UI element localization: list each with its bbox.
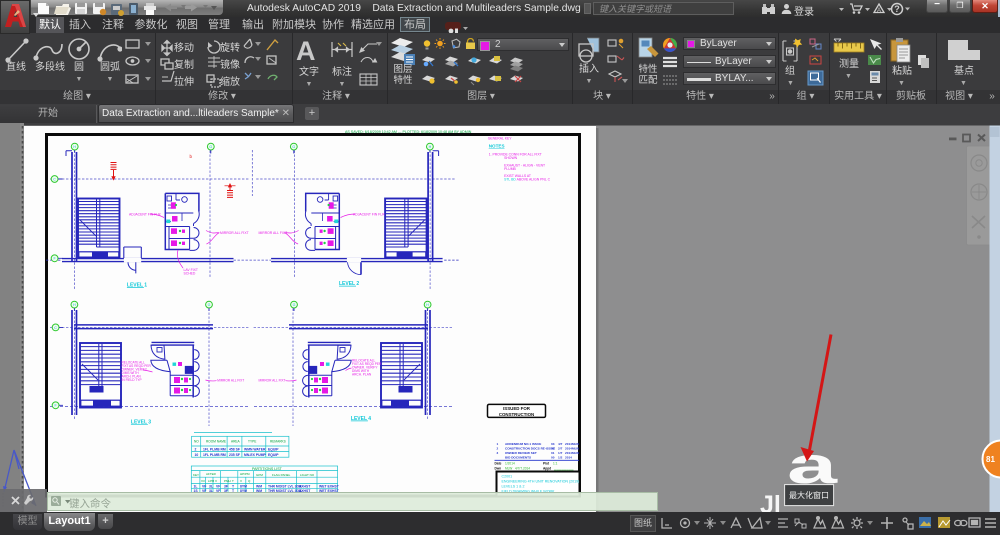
svg-text:MIRROR ALL FIXT: MIRROR ALL FIXT (217, 379, 244, 383)
svg-text:G: G (292, 145, 295, 149)
svg-text:MIRROR ALL FIXT: MIRROR ALL FIXT (220, 231, 249, 235)
svg-text:C2001: C2001 (502, 475, 513, 479)
svg-text:▼: ▼ (898, 80, 905, 87)
svg-text:CONSTRUCTION DOCS RE-ISSUE: CONSTRUCTION DOCS RE-ISSUE (505, 447, 555, 451)
svg-text:V: V (215, 479, 217, 483)
svg-text:VF: VF (216, 485, 220, 489)
svg-text:粘贴: 粘贴 (892, 64, 912, 77)
svg-text:FLAG PANEL: FLAG PANEL (272, 473, 291, 477)
svg-text:PARTITIONS LIST: PARTITIONS LIST (252, 467, 283, 471)
svg-text:CONSTRUCTION: CONSTRUCTION (499, 412, 534, 417)
svg-text:4/7: 4/7 (558, 442, 563, 446)
svg-text:MLW: MLW (572, 442, 579, 446)
svg-text:SCHED: SCHED (184, 272, 196, 276)
svg-text:MN-EX PUMP: MN-EX PUMP (244, 453, 266, 457)
svg-text:Jl: Jl (760, 491, 781, 512)
svg-text:EQUIP: EQUIP (268, 453, 279, 457)
svg-text:3L: 3L (209, 485, 213, 489)
svg-text:ARCH. PLAN: ARCH. PLAN (352, 373, 372, 377)
svg-text:8YM: 8YM (240, 485, 247, 489)
svg-text:LPM: LPM (208, 479, 215, 483)
svg-text:1L: 1L (194, 485, 198, 489)
svg-text:02: 02 (551, 447, 555, 451)
svg-text:NOTES: NOTES (489, 144, 505, 149)
svg-text:1FL PLMB RM: 1FL PLMB RM (203, 453, 226, 457)
svg-text:缩放: 缩放 (220, 75, 240, 88)
svg-text:2/7: 2/7 (558, 447, 563, 451)
svg-text:1/7: 1/7 (558, 451, 563, 455)
svg-text:旋转: 旋转 (220, 41, 240, 54)
svg-text:▁▁▁▁▁▁▁▁: ▁▁▁▁▁▁▁▁ (553, 467, 574, 471)
svg-text:G: G (208, 303, 211, 307)
svg-text:MIRROR ALL FIXT: MIRROR ALL FIXT (259, 379, 286, 383)
svg-text:V3: V3 (201, 479, 205, 483)
svg-text:镜像: 镜像 (220, 58, 240, 71)
svg-text:1: 1 (497, 442, 499, 446)
svg-text:81: 81 (986, 455, 995, 464)
svg-text:LIGHT NO: LIGHT NO (300, 473, 315, 477)
svg-text:235 SF: 235 SF (229, 453, 240, 457)
svg-text:THR MOIST LVL 3OA: THR MOIST LVL 3OA (268, 485, 302, 489)
svg-text:458 SF: 458 SF (229, 447, 240, 451)
svg-text:2014: 2014 (565, 456, 572, 460)
svg-text:最大化窗口: 最大化窗口 (789, 490, 829, 500)
svg-text:▼: ▼ (845, 73, 852, 80)
svg-text:T: T (232, 479, 234, 483)
svg-text:SHOWN: SHOWN (504, 156, 518, 160)
svg-text:PMH: PMH (224, 479, 231, 483)
svg-text:1FL PLMB RM: 1FL PLMB RM (203, 447, 226, 451)
svg-text:3F: 3F (224, 485, 228, 489)
svg-text:PLUMB: PLUMB (504, 167, 516, 171)
svg-text:3: 3 (497, 451, 499, 455)
svg-text:AFTER: AFTER (206, 472, 217, 476)
svg-text:MLW: MLW (572, 451, 579, 455)
svg-text:H: H (73, 145, 76, 149)
svg-text:V: V (240, 479, 242, 483)
svg-text:TYPE: TYPE (248, 440, 256, 444)
svg-text:ADJACENT FIN FLR: ADJACENT FIN FLR (353, 213, 385, 217)
svg-text:AREA: AREA (231, 440, 241, 444)
svg-text:C: C (53, 177, 56, 181)
svg-text:C: C (54, 326, 57, 330)
svg-text:ROOM NAME: ROOM NAME (206, 440, 226, 444)
svg-text:AS SAVED: 6/18/2009 10:42 AM —: AS SAVED: 6/18/2009 10:42 AM — PLOTTED: … (345, 130, 472, 134)
svg-text:?: ? (894, 4, 900, 14)
svg-text:1/2: 1/2 (558, 456, 563, 460)
svg-text:OWNER REVIEW SET: OWNER REVIEW SET (505, 451, 537, 455)
svg-text:2: 2 (195, 447, 197, 451)
svg-text:G: G (293, 303, 296, 307)
svg-text:1/2014: 1/2014 (505, 462, 515, 466)
svg-text:MIRROR ALL FIXT: MIRROR ALL FIXT (259, 231, 288, 235)
svg-text:EXHST: EXHST (299, 485, 311, 489)
svg-text:Plot: Plot (543, 462, 550, 466)
svg-text:HP/PM: HP/PM (240, 472, 250, 476)
svg-text:VF: VF (202, 485, 206, 489)
svg-text:拉伸: 拉伸 (174, 75, 194, 88)
svg-text:基点: 基点 (954, 64, 974, 77)
svg-text:H: H (73, 303, 76, 307)
svg-text:1:1: 1:1 (553, 462, 558, 466)
svg-text:GPM: GPM (256, 473, 263, 477)
svg-text:EQUIP: EQUIP (268, 447, 279, 451)
svg-text:WET EXHST: WET EXHST (319, 485, 340, 489)
svg-text:LEVELS 1 & 2: LEVELS 1 & 2 (502, 485, 525, 489)
svg-text:00: 00 (551, 456, 555, 460)
svg-text:Dwn: Dwn (495, 467, 502, 471)
svg-text:KEY: KEY (193, 473, 199, 477)
svg-text:BID DOCUMENTS: BID DOCUMENTS (505, 456, 531, 460)
svg-text:NO: NO (194, 440, 199, 444)
svg-text:STL BD ABOVE ALIGN PNL C: STL BD ABOVE ALIGN PNL C (504, 177, 550, 181)
svg-text:Date: Date (495, 462, 502, 466)
svg-text:01: 01 (551, 451, 555, 455)
svg-text:MLW: MLW (505, 467, 512, 471)
svg-text:G: G (209, 145, 212, 149)
svg-text:10: 10 (195, 453, 199, 457)
svg-text:MLW: MLW (572, 447, 579, 451)
svg-text:H: H (426, 303, 429, 307)
svg-text:IN FIELD TYP: IN FIELD TYP (122, 378, 142, 382)
svg-text:ADDENDUM NO.1 ISSUE: ADDENDUM NO.1 ISSUE (505, 442, 541, 446)
svg-text:组: 组 (785, 64, 795, 77)
svg-text:ENGINEERING 4TH UNIT RENOVATIO: ENGINEERING 4TH UNIT RENOVATION (2019) (502, 480, 580, 484)
svg-text:A: A (877, 8, 881, 14)
svg-text:WM: WM (256, 485, 262, 489)
svg-text:REMARKS: REMARKS (270, 440, 286, 444)
svg-text:Appd: Appd (543, 467, 551, 471)
svg-text:2: 2 (497, 447, 499, 451)
svg-text:移动: 移动 (174, 41, 194, 54)
svg-text:4/7/7.2014: 4/7/7.2014 (515, 467, 530, 471)
svg-text:ISSUED FOR: ISSUED FOR (503, 406, 531, 411)
svg-text:测量: 测量 (839, 57, 859, 70)
svg-text:H: H (429, 145, 432, 149)
svg-text:▼: ▼ (960, 80, 967, 87)
svg-text:复制: 复制 (174, 58, 194, 71)
svg-text:03: 03 (551, 442, 555, 446)
svg-text:GENERAL KEY: GENERAL KEY (488, 136, 513, 140)
svg-text:▼: ▼ (787, 80, 794, 87)
svg-text:WMN WATER: WMN WATER (244, 447, 266, 451)
